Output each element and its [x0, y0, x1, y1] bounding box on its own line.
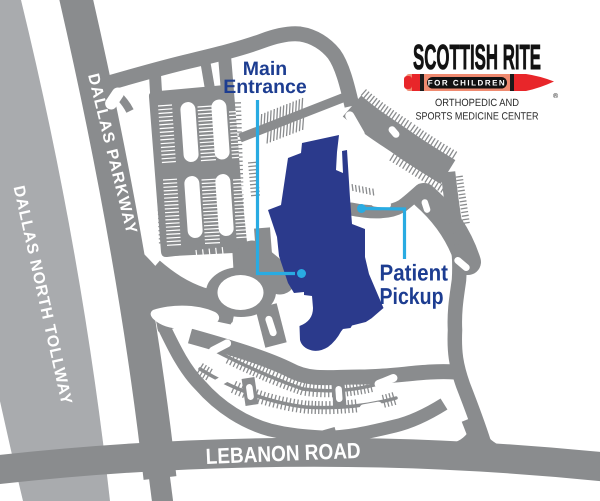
svg-text:FOR CHILDREN: FOR CHILDREN	[428, 79, 506, 88]
svg-text:Entrance: Entrance	[223, 76, 307, 98]
svg-text:Pickup: Pickup	[380, 283, 444, 309]
svg-text:SPORTS MEDICINE CENTER: SPORTS MEDICINE CENTER	[416, 111, 539, 123]
svg-text:Patient: Patient	[380, 260, 449, 286]
svg-text:ORTHOPEDIC AND: ORTHOPEDIC AND	[435, 97, 519, 109]
svg-text:®: ®	[553, 93, 559, 100]
svg-text:SCOTTISH RITE: SCOTTISH RITE	[413, 38, 541, 77]
